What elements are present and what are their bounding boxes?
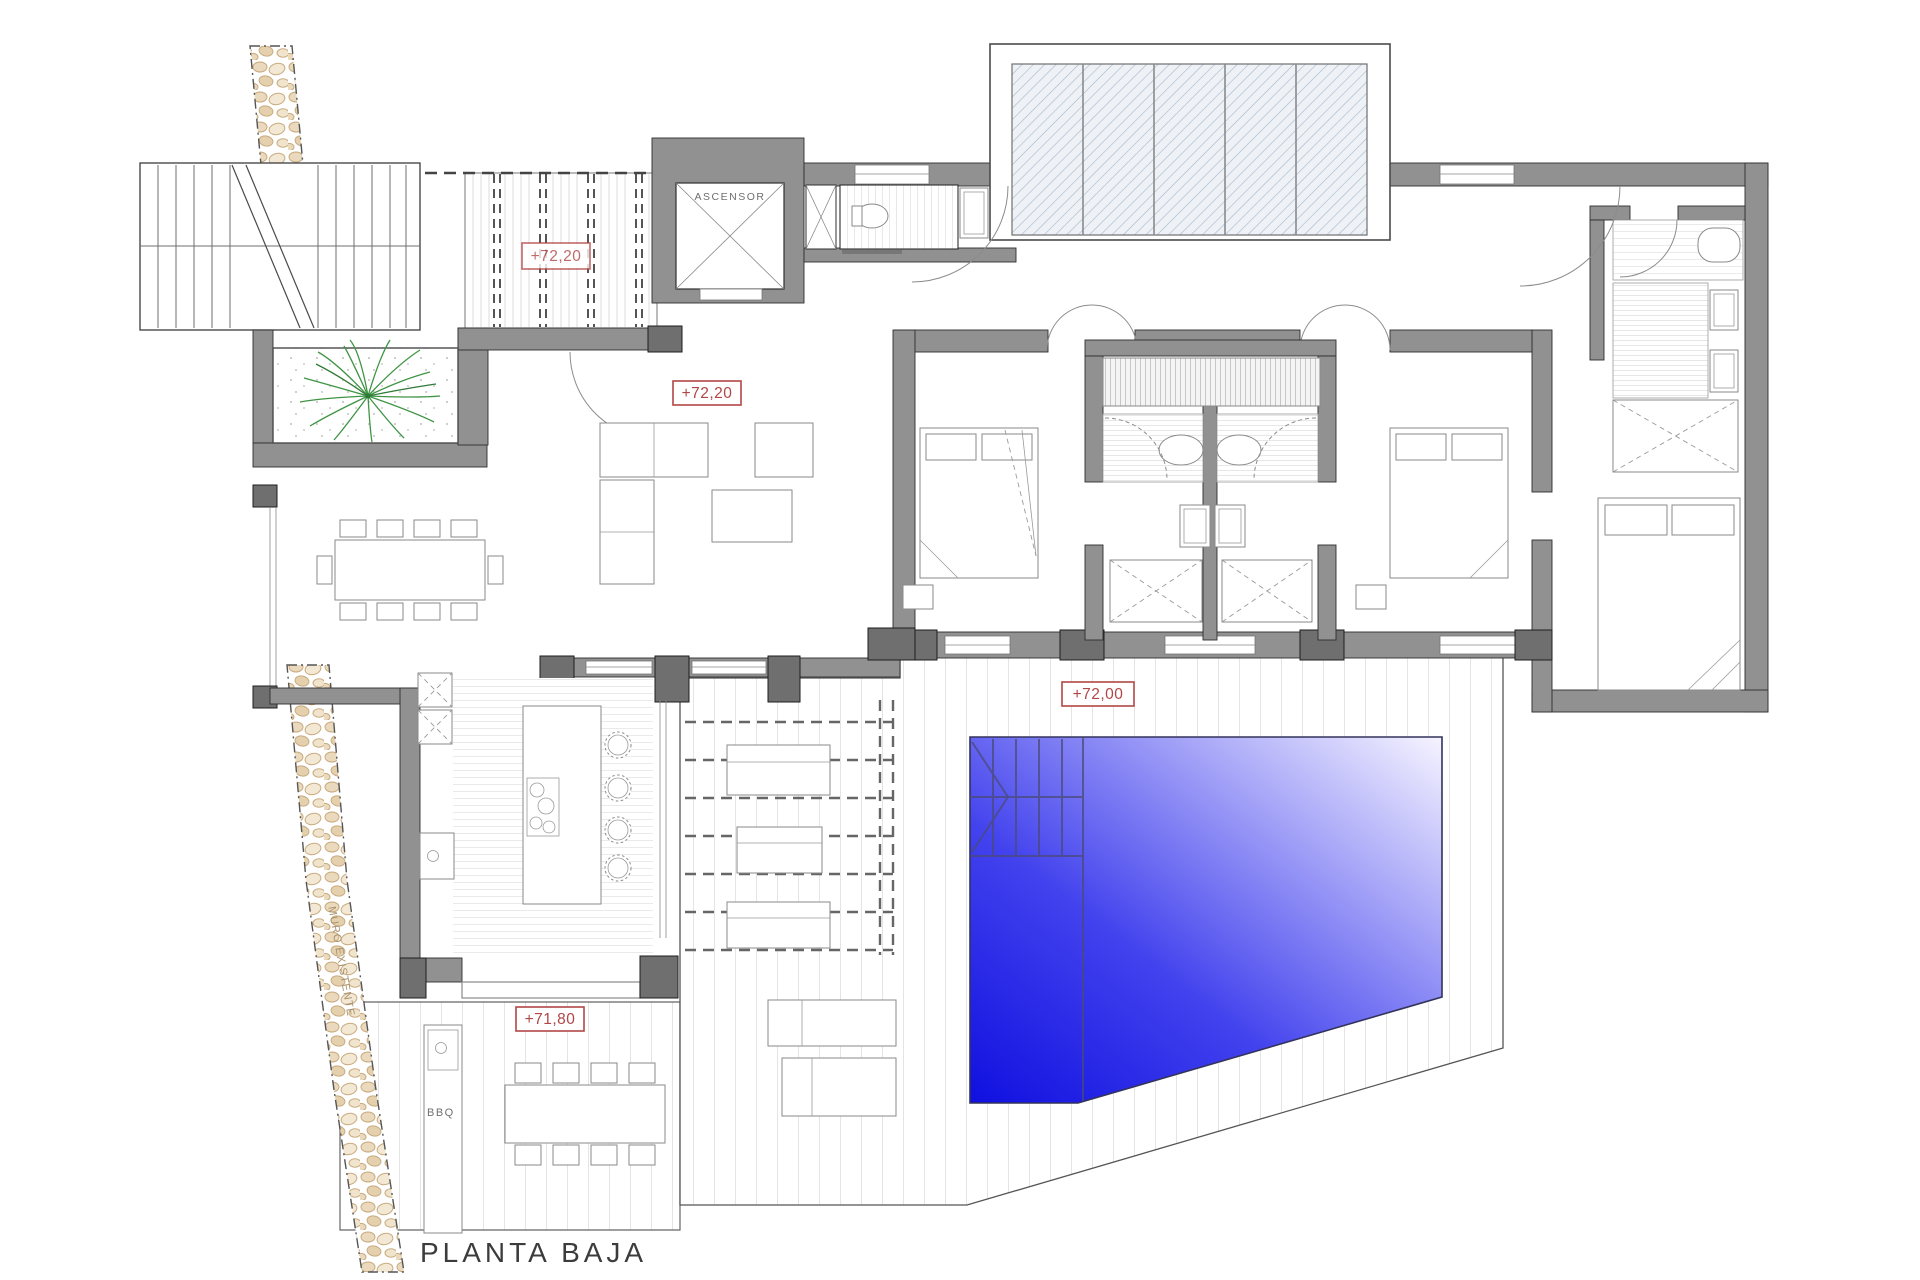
elevator-label: ASCENSOR [695, 191, 766, 203]
window-gap [855, 165, 929, 184]
appliance-column [418, 673, 452, 744]
plan-title: PLANTA BAJA [420, 1237, 647, 1268]
floor-plan-drawing: MURO EXISTENTE BBQ [0, 0, 1920, 1280]
bedroom-2 [1356, 428, 1508, 609]
bedrooms-south-wall [895, 630, 1552, 660]
dining-table [317, 520, 503, 620]
stairs [140, 163, 420, 330]
svg-text:+72,20: +72,20 [531, 248, 582, 265]
guest-wc [840, 185, 958, 252]
floor-plan-page: MURO EXISTENTE BBQ [0, 0, 1920, 1280]
bbq-counter: BBQ [424, 1025, 462, 1233]
sofa-set [600, 423, 813, 584]
svg-text:+71,80: +71,80 [525, 1011, 576, 1028]
outdoor-sofa [727, 902, 830, 948]
upper-patio: +72,20 [425, 173, 660, 328]
sun-loungers [768, 1000, 896, 1116]
bedroom-1 [903, 428, 1038, 609]
master-bed [1598, 498, 1740, 690]
skylight [990, 44, 1390, 240]
outdoor-sofa [737, 827, 822, 873]
level-label-upper-patio: +72,20 [522, 243, 590, 269]
west-window-wall [253, 485, 277, 708]
level-label-living: +72,20 [673, 381, 741, 405]
svg-text:+72,00: +72,00 [1073, 686, 1124, 703]
bbq-label: BBQ [427, 1107, 455, 1119]
central-bathrooms [1085, 340, 1336, 640]
kitchen-island [523, 706, 601, 904]
existing-wall-path-top [250, 46, 303, 165]
master-suite [1598, 220, 1743, 690]
kitchen-sink [420, 833, 454, 879]
outdoor-sofa [727, 745, 830, 795]
elevator: ASCENSOR [652, 138, 804, 303]
wardrobe [1613, 400, 1738, 472]
level-label-terrace: +71,80 [516, 1007, 584, 1031]
svg-text:+72,20: +72,20 [682, 385, 733, 402]
kitchen [400, 673, 678, 998]
level-label-deck: +72,00 [1062, 682, 1134, 706]
